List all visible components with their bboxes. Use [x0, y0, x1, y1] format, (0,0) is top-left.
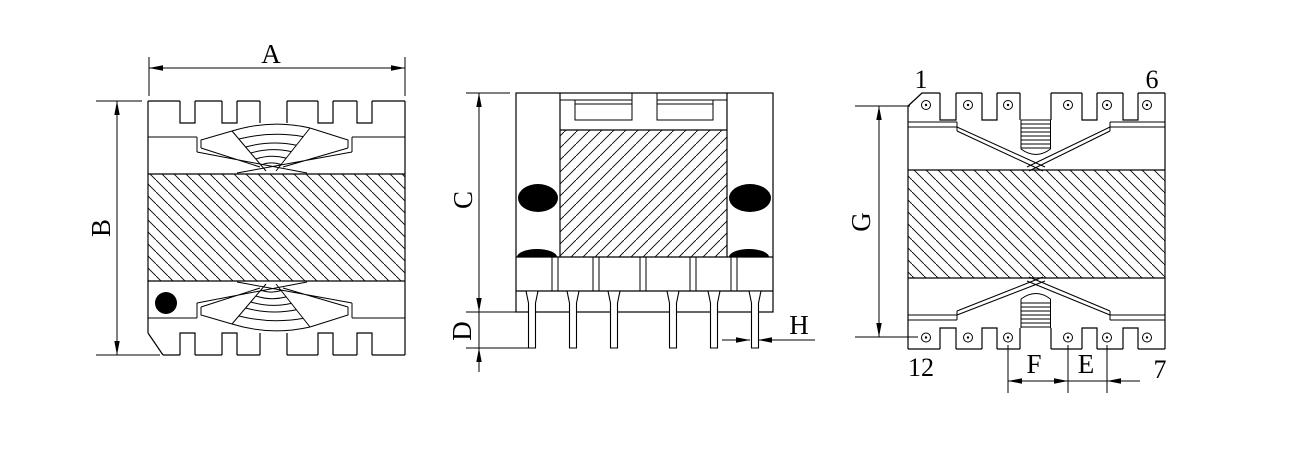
- side-view: G F E 1 6 12 7: [846, 65, 1167, 393]
- dimension-A: A: [149, 39, 405, 96]
- dimension-H: H: [722, 310, 815, 343]
- half-hole-right: [729, 249, 769, 257]
- label-pin-1: 1: [915, 65, 928, 94]
- dimension-G: G: [846, 106, 918, 337]
- label-dim-B: B: [86, 219, 116, 237]
- engineering-drawing: A B: [0, 0, 1303, 456]
- top-view: A B: [86, 39, 405, 355]
- half-hole-left: [517, 249, 557, 257]
- mount-hole-left: [518, 184, 558, 212]
- label-dim-H: H: [789, 310, 809, 340]
- label-dim-C: C: [448, 191, 478, 209]
- front-view: C D H: [447, 93, 815, 372]
- wire-channel-bottom: [1021, 294, 1051, 329]
- label-dim-D: D: [447, 321, 477, 341]
- label-pin-6: 6: [1146, 65, 1159, 94]
- label-dim-F: F: [1026, 349, 1041, 379]
- label-pin-12: 12: [908, 353, 934, 382]
- drawing-canvas: A B: [0, 0, 1303, 456]
- label-dim-E: E: [1078, 349, 1095, 379]
- pins-front: [526, 291, 761, 348]
- dimension-D: D: [447, 312, 530, 372]
- top-wire-funnel: [197, 124, 352, 173]
- mount-hole-right: [729, 184, 771, 212]
- label-dim-A: A: [261, 39, 281, 69]
- dimension-C: C: [448, 93, 510, 312]
- wire-channel-top: [1021, 120, 1051, 155]
- polarity-dot: [155, 292, 177, 314]
- dimension-F-E: F E: [1008, 345, 1140, 393]
- label-pin-7: 7: [1154, 355, 1167, 384]
- core-hatch-front: [560, 130, 727, 257]
- bottom-wire-funnel: [197, 282, 352, 331]
- core-hatch: [148, 174, 405, 281]
- core-hatch-side: [908, 170, 1165, 278]
- label-dim-G: G: [846, 212, 876, 232]
